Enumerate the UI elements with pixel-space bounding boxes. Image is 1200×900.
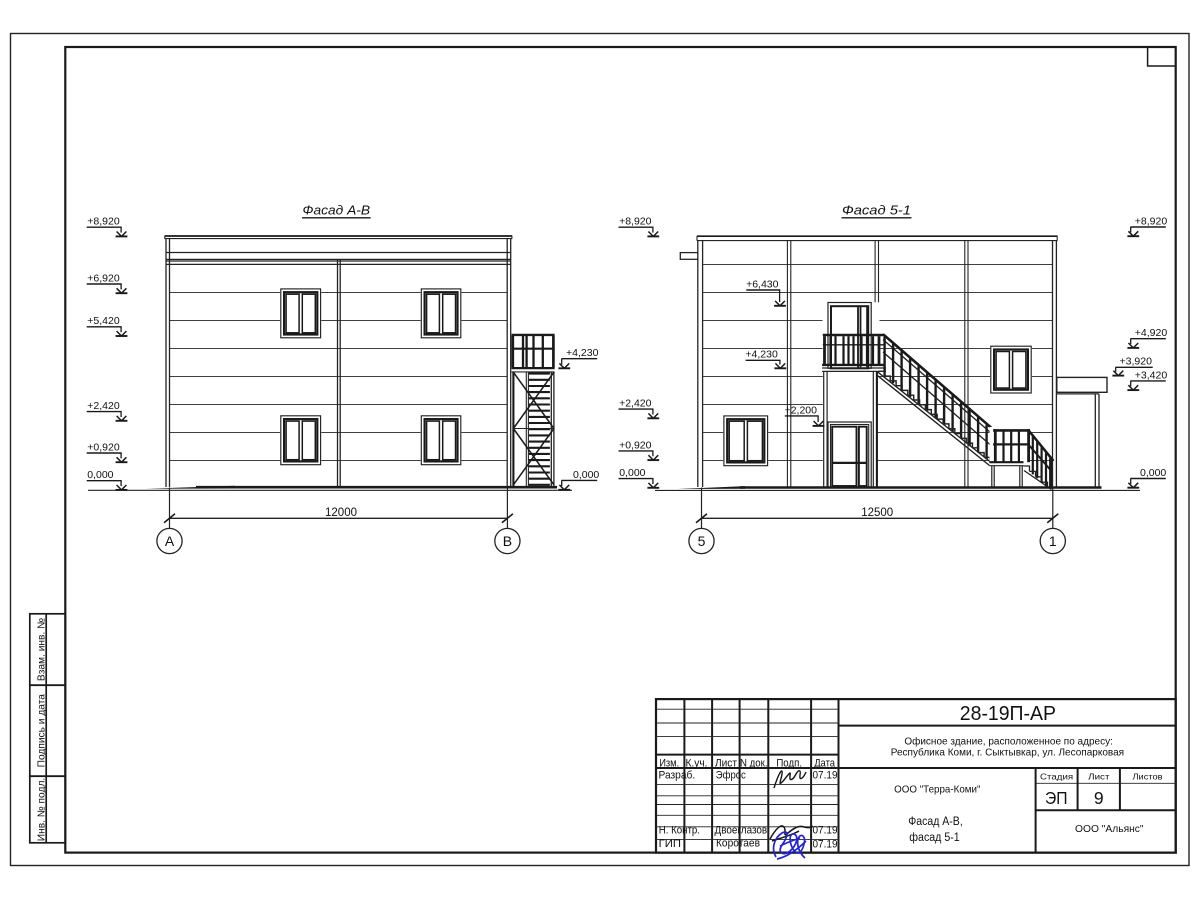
svg-text:Фасад А-В,: Фасад А-В,	[908, 816, 963, 828]
svg-text:12500: 12500	[861, 507, 893, 519]
svg-text:+2,420: +2,420	[619, 398, 652, 410]
svg-text:+8,920: +8,920	[1135, 215, 1168, 227]
svg-text:+3,420: +3,420	[1135, 369, 1168, 381]
svg-text:0,000: 0,000	[573, 469, 599, 481]
svg-text:Н. Контр.: Н. Контр.	[659, 825, 700, 837]
svg-text:Листов: Листов	[1133, 771, 1164, 781]
svg-text:Лист: Лист	[715, 758, 737, 770]
svg-text:Подп.: Подп.	[776, 758, 802, 770]
svg-text:+4,230: +4,230	[745, 349, 778, 361]
svg-text:А: А	[165, 533, 175, 549]
svg-text:Двоеглазов: Двоеглазов	[715, 824, 768, 836]
svg-text:9: 9	[1094, 788, 1104, 808]
svg-text:Взам. инв. №: Взам. инв. №	[37, 618, 48, 681]
svg-text:Коротаев: Коротаев	[716, 837, 760, 849]
svg-text:1: 1	[1049, 533, 1057, 549]
svg-text:+6,920: +6,920	[87, 272, 120, 284]
svg-text:+4,230: +4,230	[566, 347, 599, 359]
svg-text:В: В	[503, 533, 512, 549]
svg-text:N док.: N док.	[740, 758, 768, 770]
svg-text:ГИП: ГИП	[659, 838, 681, 850]
svg-text:+2,420: +2,420	[87, 400, 120, 412]
svg-text:+4,920: +4,920	[1135, 327, 1168, 339]
svg-text:ЭП: ЭП	[1045, 788, 1068, 808]
svg-text:Офисное здание, расположенное: Офисное здание, расположенное по адресу:	[904, 736, 1113, 748]
svg-text:Изм.: Изм.	[659, 758, 679, 770]
svg-text:Фасад А-В: Фасад А-В	[303, 202, 371, 217]
svg-text:ООО "Терра-Коми": ООО "Терра-Коми"	[894, 784, 981, 796]
svg-text:+0,920: +0,920	[87, 441, 120, 453]
svg-text:+2,200: +2,200	[785, 404, 818, 416]
svg-text:ООО "Альянс": ООО "Альянс"	[1075, 823, 1144, 835]
svg-text:Эфрос: Эфрос	[716, 769, 746, 781]
svg-text:Стадия: Стадия	[1040, 771, 1073, 781]
svg-text:Разраб.: Разраб.	[659, 769, 696, 781]
svg-text:28-19П-АР: 28-19П-АР	[960, 703, 1056, 725]
svg-text:07.19: 07.19	[813, 825, 838, 837]
svg-text:0,000: 0,000	[1140, 467, 1166, 479]
svg-text:07.19: 07.19	[813, 769, 838, 781]
svg-text:Фасад 5-1: Фасад 5-1	[842, 202, 911, 217]
svg-text:0,000: 0,000	[87, 469, 113, 481]
svg-text:+0,920: +0,920	[619, 439, 652, 451]
svg-text:+8,920: +8,920	[87, 216, 120, 228]
svg-text:фасад 5-1: фасад 5-1	[909, 832, 959, 844]
svg-text:12000: 12000	[325, 507, 357, 519]
svg-text:07.19: 07.19	[813, 838, 838, 850]
svg-text:К.уч.: К.уч.	[686, 758, 708, 770]
svg-text:Инв. № подл.: Инв. № подл.	[37, 778, 48, 841]
svg-text:+8,920: +8,920	[619, 216, 652, 228]
svg-text:+5,420: +5,420	[87, 315, 120, 327]
svg-text:+6,430: +6,430	[746, 278, 779, 290]
svg-text:Республика Коми, г. Сыктывкар,: Республика Коми, г. Сыктывкар, ул. Лесоп…	[891, 746, 1124, 758]
svg-text:Лист: Лист	[1088, 771, 1109, 781]
svg-text:Дата: Дата	[814, 758, 836, 770]
svg-text:0,000: 0,000	[619, 467, 645, 479]
svg-text:Подпись и дата: Подпись и дата	[37, 694, 48, 768]
svg-text:+3,920: +3,920	[1120, 356, 1153, 368]
svg-text:5: 5	[698, 533, 706, 549]
